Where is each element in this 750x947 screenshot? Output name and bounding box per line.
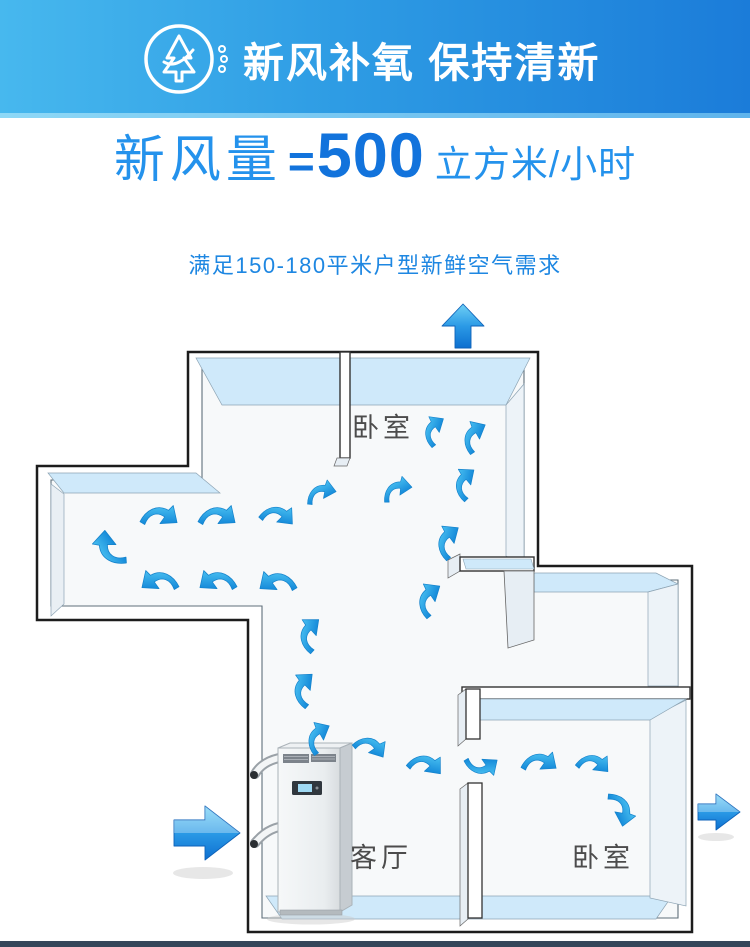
- air-outlet-up-arrow: [442, 304, 484, 348]
- header-banner: 新风补氧 保持清新: [0, 0, 750, 118]
- banner-title: 新风补氧 保持清新: [243, 29, 600, 89]
- headline-value: 500: [317, 120, 425, 192]
- room-label-bedroom-right: 卧室: [572, 836, 634, 875]
- tree-wind-icon: [143, 17, 243, 101]
- headline-equals: =: [288, 134, 315, 188]
- subtitle: 满足150-180平米户型新鲜空气需求: [0, 248, 750, 280]
- headline-unit: 立方米/小时: [435, 134, 636, 188]
- room-label-living-room: 客厅: [350, 836, 412, 875]
- headline: 新风量=500立方米/小时: [0, 118, 750, 210]
- floorplan: 卧室 客厅 卧室: [0, 288, 750, 947]
- room-label-bedroom-top: 卧室: [352, 406, 414, 445]
- headline-prefix: 新风量: [114, 118, 282, 192]
- bottom-rule: [0, 941, 750, 947]
